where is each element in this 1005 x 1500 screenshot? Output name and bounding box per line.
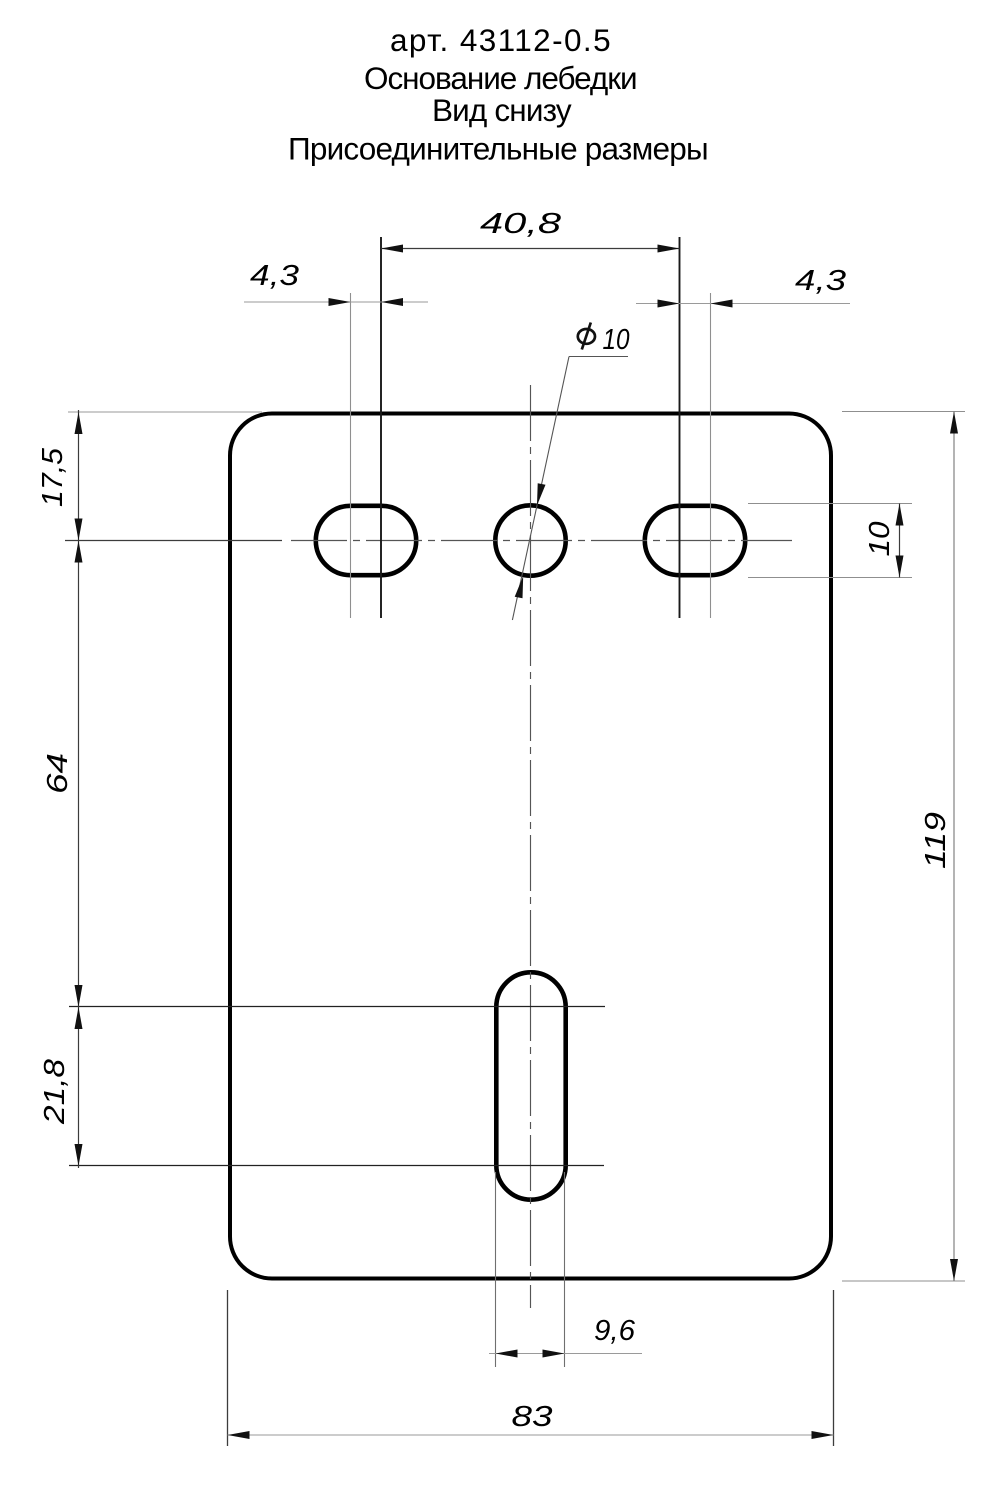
svg-text:10: 10: [864, 522, 896, 557]
svg-text:4,3: 4,3: [250, 260, 299, 292]
svg-text:40,8: 40,8: [480, 208, 561, 240]
svg-text:9,6: 9,6: [594, 1315, 636, 1347]
svg-text:10: 10: [603, 324, 630, 356]
svg-text:83: 83: [512, 1401, 553, 1433]
svg-text:арт. 43112-0.5: арт. 43112-0.5: [390, 22, 611, 58]
svg-text:21,8: 21,8: [39, 1059, 71, 1125]
svg-text:Основание лебедки: Основание лебедки: [364, 60, 638, 96]
svg-text:119: 119: [920, 812, 952, 869]
svg-text:17,5: 17,5: [37, 447, 69, 507]
svg-text:64: 64: [42, 753, 74, 794]
svg-text:Вид снизу: Вид снизу: [432, 92, 572, 128]
svg-text:4,3: 4,3: [795, 265, 846, 297]
svg-text:Присоединительные размеры: Присоединительные размеры: [288, 131, 709, 167]
